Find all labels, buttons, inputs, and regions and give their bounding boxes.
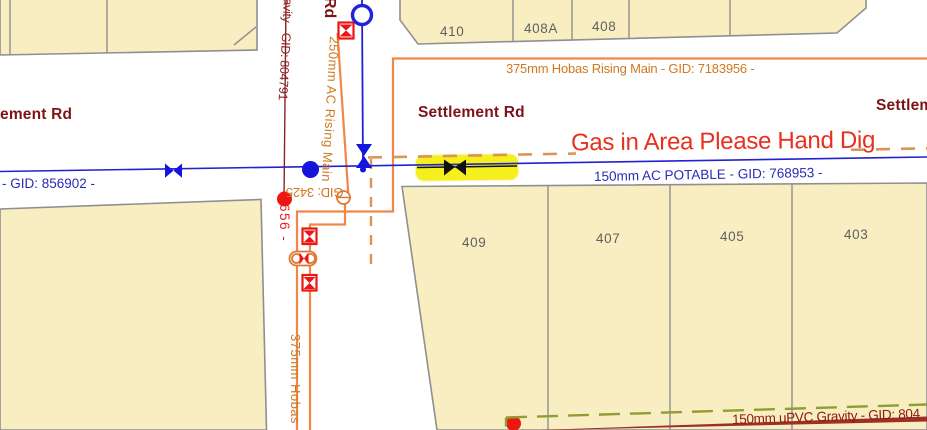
parcel-polygons	[0, 0, 927, 430]
hobas-rising-main-label: 375mm Hobas Rising Main - GID: 7183956 -	[506, 61, 755, 76]
potable-gid-left-label: - GID: 856902 -	[2, 176, 95, 191]
valve-icon-rising-main-1	[303, 229, 317, 245]
parcel-label-403: 403	[844, 227, 868, 242]
gis-map-canvas[interactable]: ement Rd Settlement Rd Settlement Rd Rd …	[0, 0, 927, 430]
parcel-label-408A: 408A	[524, 21, 558, 36]
street-label-left: ement Rd	[0, 106, 72, 124]
parcel-label-408: 408	[592, 19, 616, 34]
bypass-connector-icon	[290, 252, 317, 266]
hydrant-circle-icon	[353, 6, 372, 25]
map-linework	[0, 0, 927, 430]
highlighted-segment-line	[417, 166, 517, 168]
gid-656-label: 656 -	[277, 204, 292, 242]
gas-warning-text: Gas in Area Please Hand Dig	[571, 127, 875, 158]
parcel-label-407: 407	[596, 231, 620, 246]
street-label-center: Settlement Rd	[418, 104, 525, 122]
valve-icon-branch	[356, 144, 372, 168]
parcel-label-405: 405	[720, 229, 744, 244]
street-label-vertical: Rd	[320, 0, 338, 18]
street-label-right: Settlement Rd	[876, 97, 927, 115]
parcel-label-410: 410	[440, 24, 464, 39]
parcel-label-409: 409	[462, 235, 486, 250]
junction-dot-blue	[360, 167, 366, 173]
valve-icon-rising-main-2	[303, 275, 317, 291]
node-marker-blue	[302, 161, 319, 178]
gid-3425-label: GID: 3425	[286, 185, 343, 200]
hobas-vertical-label: 375mm Hobas	[288, 334, 303, 424]
valve-icon-potable	[165, 164, 182, 178]
